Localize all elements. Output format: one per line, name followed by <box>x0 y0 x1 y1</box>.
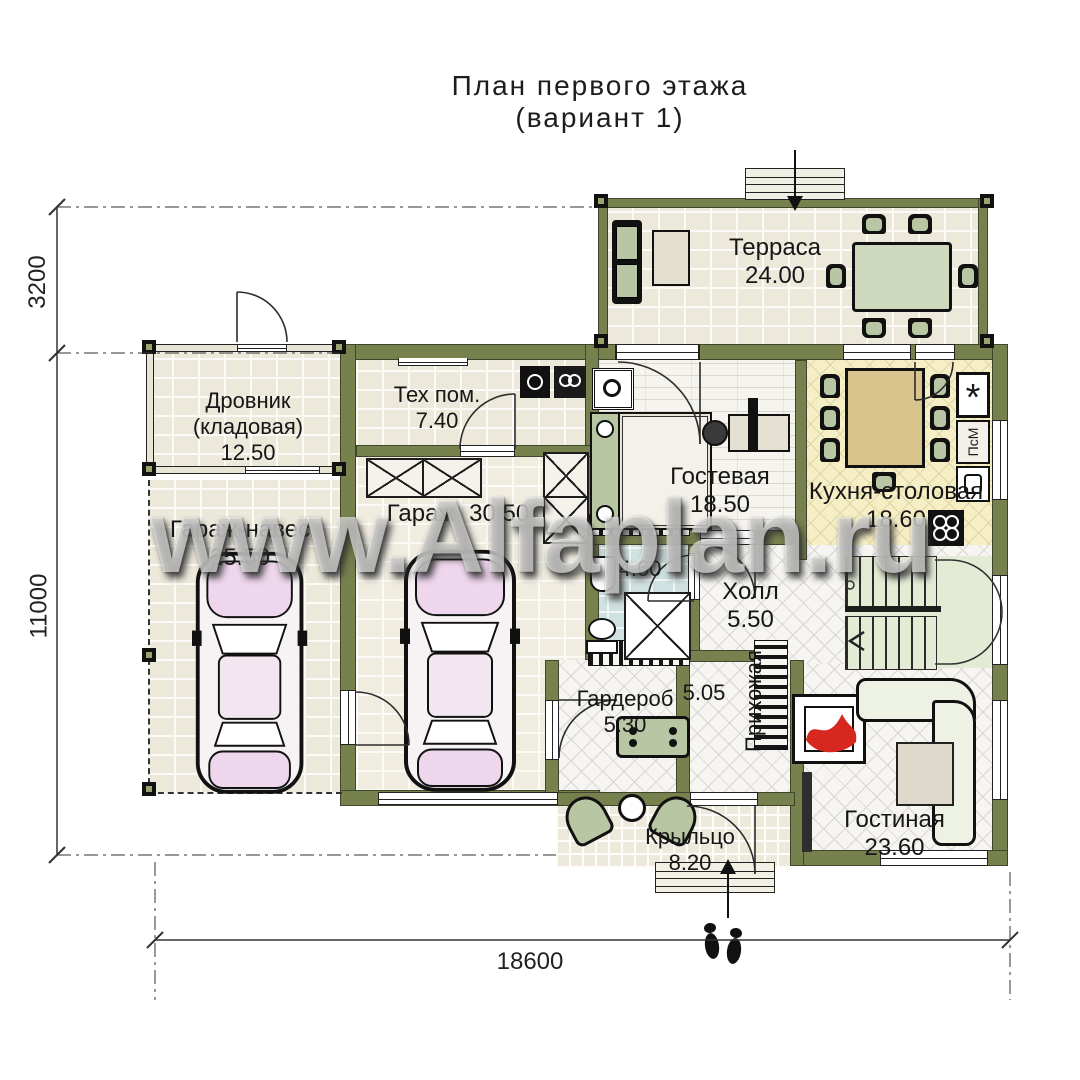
room-area: 12.50 <box>150 440 346 466</box>
room-name: Терраса <box>680 234 870 262</box>
flame-icon <box>806 714 856 752</box>
hallway-name-label: Прихожая <box>741 621 767 781</box>
room-name: Крыльцо <box>630 824 750 850</box>
room-name: Прихожая <box>741 621 767 781</box>
page-title: План первого этажа (вариант 1) <box>330 70 870 134</box>
tech-room-label: Тех пом. 7.40 <box>362 382 512 434</box>
drovnik-label: Дровник (кладовая) 12.50 <box>150 388 346 466</box>
room-area: 5.05 <box>668 680 740 706</box>
room-area: 8.20 <box>630 850 750 876</box>
footprints-icon <box>703 922 742 965</box>
room-area: 24.00 <box>680 262 870 290</box>
room-area: 7.40 <box>362 408 512 434</box>
dimension-lines <box>49 199 1018 1000</box>
room-name: Тех пом. <box>362 382 512 408</box>
hallway-area-label: 5.05 <box>668 680 740 706</box>
room-name: Дровник <box>150 388 346 414</box>
wardrobe-label: Гардероб 5.30 <box>565 686 685 738</box>
room-name: (кладовая) <box>150 414 346 440</box>
room-name: Гардероб <box>565 686 685 712</box>
living-room-label: Гостиная 23.60 <box>812 806 977 863</box>
floor-plan-canvas: План первого этажа (вариант 1) <box>0 0 1080 1080</box>
dimension-3200: 3200 <box>24 242 52 322</box>
dimension-18600: 18600 <box>460 948 600 976</box>
watermark: www.Alfaplan.ru <box>0 478 1080 597</box>
room-area: 5.30 <box>565 712 685 738</box>
room-name: Гостиная <box>812 806 977 834</box>
stairs-direction-arrow <box>850 632 864 650</box>
title-line1: План первого этажа <box>330 70 870 102</box>
room-area: 23.60 <box>812 834 977 862</box>
terrace-label: Терраса 24.00 <box>680 234 870 291</box>
title-line2: (вариант 1) <box>330 102 870 134</box>
porch-label: Крыльцо 8.20 <box>630 824 750 876</box>
